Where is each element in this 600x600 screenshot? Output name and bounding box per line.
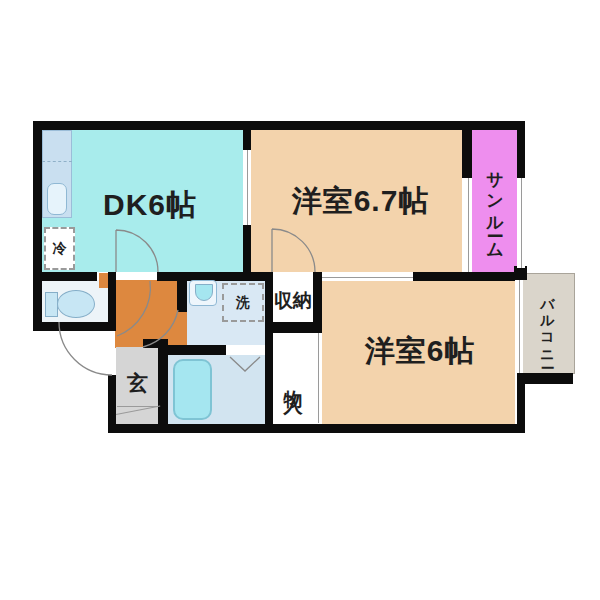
window-sunroom-left (464, 178, 472, 272)
hallway (115, 280, 177, 348)
wash-basin-icon (189, 280, 217, 306)
wall-dk-divider-b (243, 225, 251, 281)
wall-dk-divider-a (243, 121, 251, 150)
sliding-door-bedrooms (322, 272, 413, 281)
label-sunroom: サンルーム (477, 140, 513, 272)
label-storage: 収納 (271, 288, 315, 314)
label-bedroom-6: 洋室6帖 (330, 333, 510, 369)
wall-washroom-left (177, 272, 187, 312)
wall-genkan-right (158, 339, 168, 433)
hallway-ext (177, 312, 187, 348)
label-bedroom-6-7: 洋室6.7帖 (268, 183, 453, 219)
wall-bath-top (168, 345, 226, 355)
wall-right-upper (517, 121, 525, 178)
wall-genkan-left-b (108, 375, 116, 433)
label-closet: 物入 (273, 343, 313, 415)
fridge-box: 冷 (44, 227, 75, 270)
toilet-bowl-icon (57, 290, 95, 318)
wall-storage-divider (265, 322, 322, 333)
kitchen-sink-icon (47, 183, 67, 215)
wall-toilet-bottom (33, 322, 116, 331)
wall-mid-1 (33, 272, 97, 281)
fridge-label: 冷 (53, 240, 67, 258)
wash-basin-bowl (195, 284, 213, 301)
label-entrance: 玄 (117, 369, 158, 397)
window-sunroom-right (517, 178, 525, 268)
washer-box: 洗 (222, 283, 264, 322)
bathtub-icon (173, 359, 212, 420)
wall-mid-3 (413, 272, 521, 281)
label-dk: DK6帖 (70, 188, 230, 222)
wall-sunroom-left (462, 121, 472, 178)
floorplan-canvas: 冷 洗 DK6帖 洋室6.7帖 洋室6帖 サンルーム バルコニー 収納 物入 玄 (0, 0, 600, 600)
wall-balcony-bottom (517, 373, 573, 384)
window-bedroom2-right (515, 280, 523, 373)
wall-top (33, 121, 525, 130)
wall-left (33, 121, 42, 331)
kitchen-counter-divider (42, 161, 72, 162)
label-balcony: バルコニー (531, 280, 565, 370)
wall-bottom (108, 424, 525, 433)
washer-label: 洗 (236, 294, 250, 312)
window-dk-divider (243, 150, 251, 225)
wall-genkan-left-a (108, 272, 116, 322)
sliding-door-monoire (313, 333, 322, 423)
